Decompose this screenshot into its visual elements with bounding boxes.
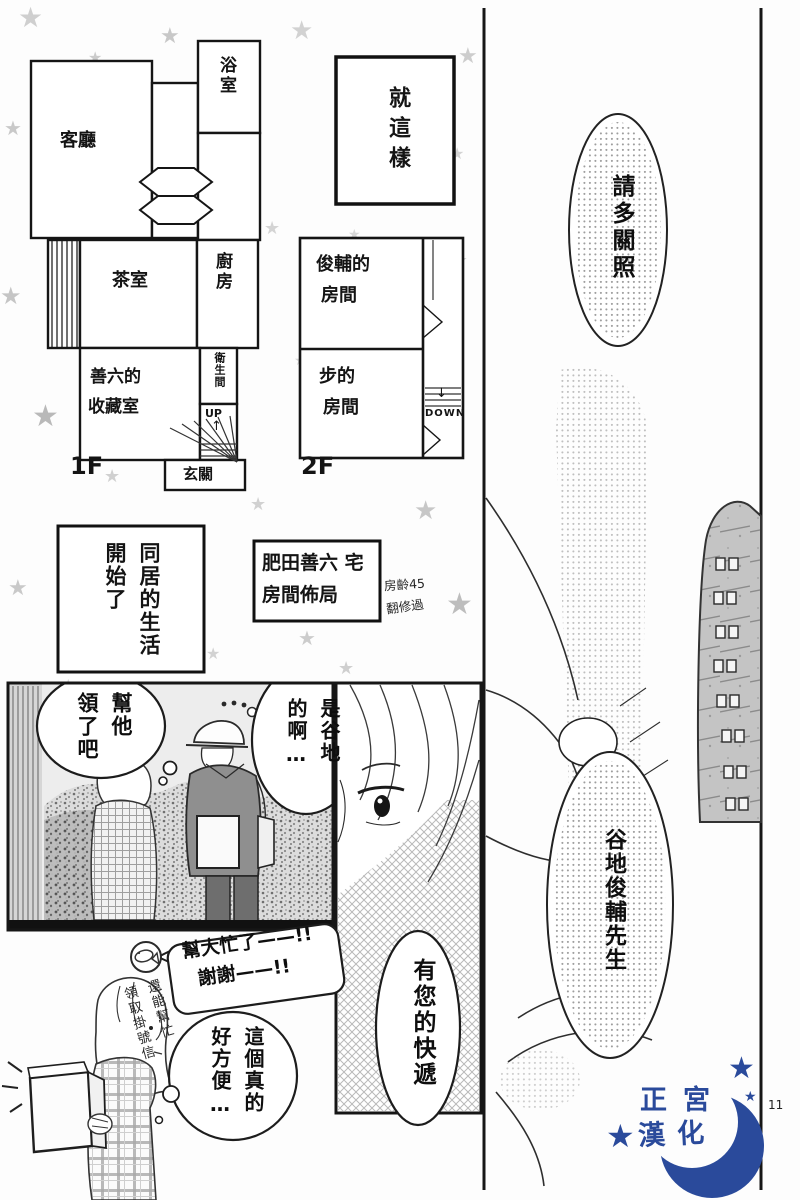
dialogue-recipient-name: 谷地俊輔先生	[597, 828, 629, 972]
stairs-down-label: DOWN	[425, 408, 465, 419]
room-label-toilet: 衛生間	[211, 352, 227, 388]
dialogue-convenient-col2: 好方便…	[206, 1026, 235, 1118]
room-label-shunsuke-1: 俊輔的	[316, 250, 370, 276]
dialogue-claim-it: 幫他 領了吧	[68, 692, 140, 761]
dialogue-its-yachi: 是谷地 的啊…	[278, 698, 348, 768]
figure-woman-back	[91, 759, 156, 920]
caption-cohabit-col2: 開始了	[100, 542, 130, 657]
up-arrow-icon: ↑	[211, 419, 222, 434]
dialogue-yachi-col2: 的啊…	[282, 698, 311, 768]
dialogue-please-care: 請多關照	[604, 174, 638, 282]
dialogue-convenient-col1: 這個真的	[239, 1026, 268, 1118]
page-number: 11	[768, 1098, 783, 1112]
room-label-collection-1: 善六的	[90, 362, 141, 387]
house-label-line1: 肥田善六 宅	[262, 548, 364, 575]
house-label-line2: 房間佈局	[262, 580, 338, 607]
room-label-ayumu-2: 房間	[323, 393, 359, 419]
logo-star-icon	[606, 1120, 635, 1152]
floor-label-2f: 2F	[301, 452, 334, 480]
logo-text-line2: 漢化	[637, 1110, 717, 1153]
manga-page: 浴室 客廳 茶室 廚房 善六的 收藏室 衛生間 UP ↑ 玄關 1F 俊輔的 房…	[0, 0, 800, 1200]
room-label-ayumu-1: 步的	[319, 362, 355, 388]
house-note-age: 房齡45	[383, 573, 425, 595]
building	[698, 502, 761, 822]
caption-just-so: 就這樣	[381, 86, 413, 176]
room-label-kitchen: 廚房	[210, 252, 235, 292]
dialogue-claim-col2: 領了吧	[72, 692, 102, 761]
dialogue-yachi-col1: 是谷地	[315, 698, 344, 768]
room-label-living: 客廳	[60, 126, 96, 152]
dialogue-convenient: 這個真的 好方便…	[202, 1026, 272, 1118]
floor-label-1f: 1F	[70, 452, 103, 480]
caption-cohabit: 同居的生活 開始了	[96, 542, 168, 657]
fish-stamp-icon	[131, 942, 161, 972]
dialogue-claim-col1: 幫他	[106, 692, 136, 761]
room-label-tea: 茶室	[112, 266, 148, 292]
dialogue-delivery: 有您的快遞	[405, 958, 439, 1088]
caption-cohabit-col1: 同居的生活	[134, 542, 164, 657]
room-label-shunsuke-2: 房間	[321, 281, 357, 307]
down-arrow-icon: ↓	[436, 386, 447, 401]
logo-star-icon	[728, 1054, 755, 1084]
room-label-entrance: 玄關	[183, 463, 213, 484]
room-label-collection-2: 收藏室	[88, 392, 139, 417]
room-label-bath: 浴室	[214, 56, 239, 96]
logo-star-icon	[744, 1090, 757, 1104]
